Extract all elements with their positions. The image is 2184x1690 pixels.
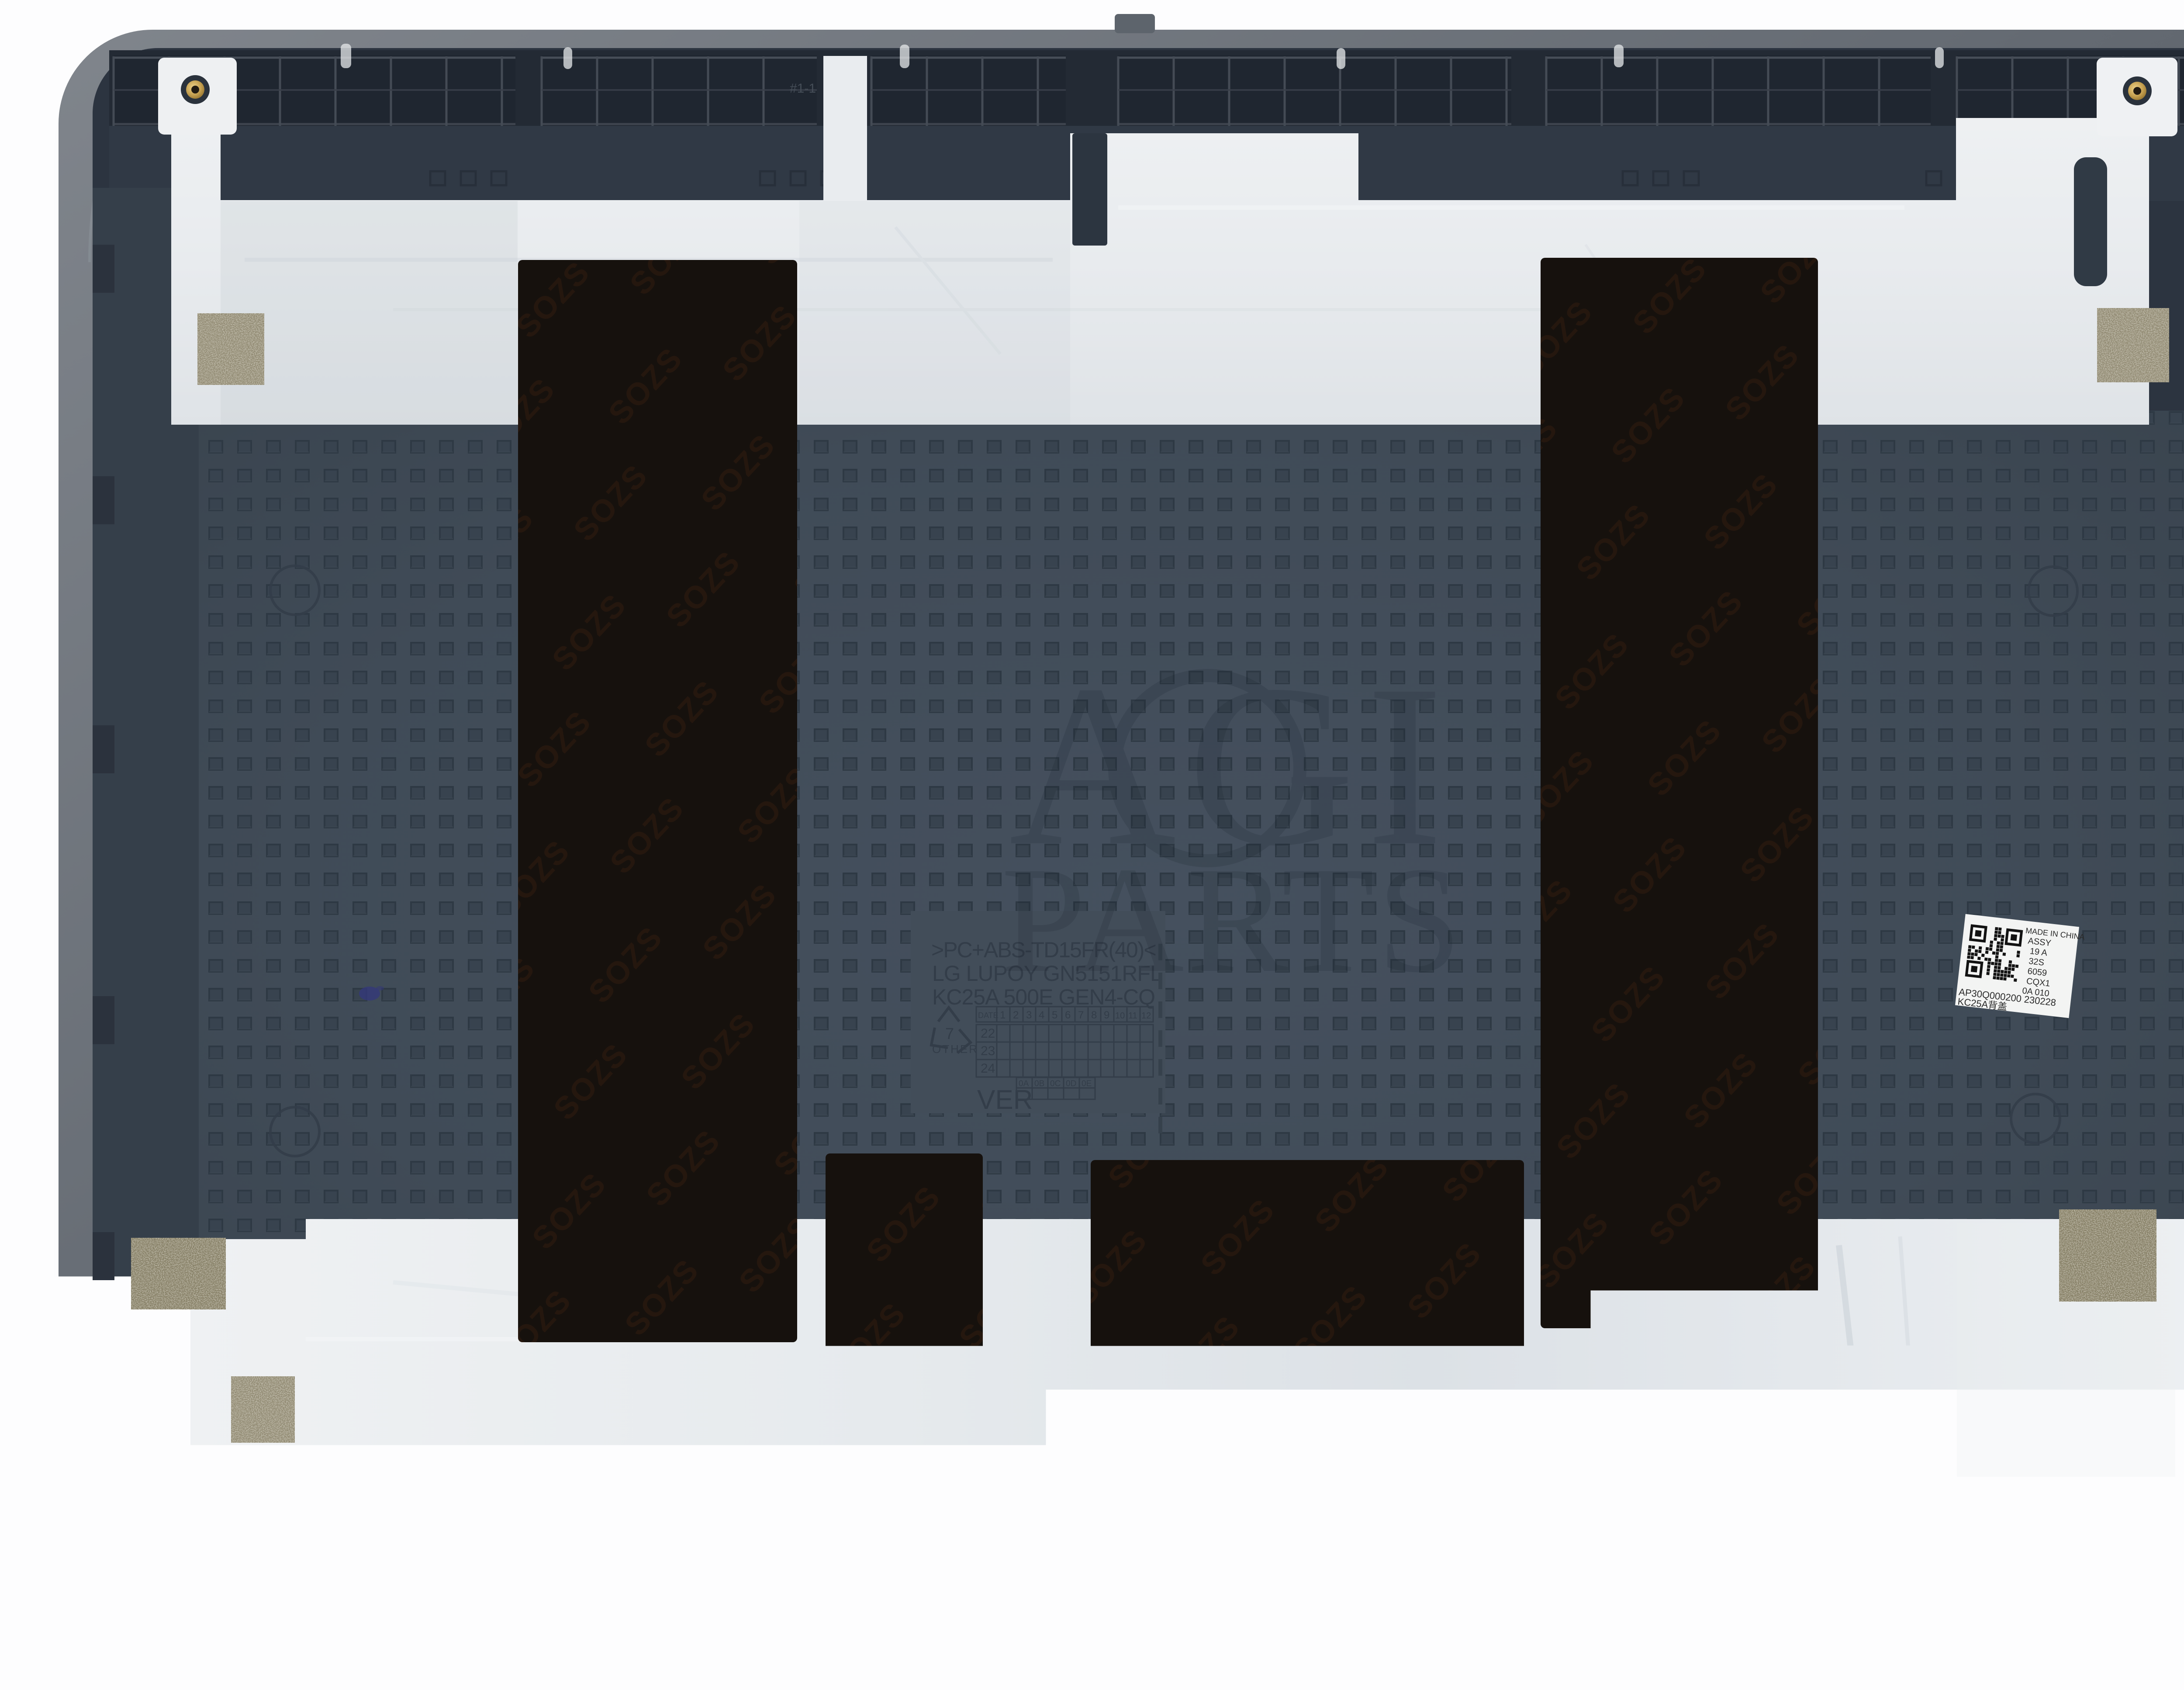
svg-text:1: 1 — [1000, 1009, 1006, 1021]
svg-text:22: 22 — [981, 1026, 995, 1041]
svg-text:3: 3 — [1026, 1009, 1032, 1021]
svg-text:19 A: 19 A — [2029, 946, 2048, 958]
svg-text:23: 23 — [981, 1044, 995, 1058]
svg-text:0C: 0C — [1050, 1079, 1061, 1088]
svg-text:831095100027A: 831095100027A — [1393, 1521, 1464, 1532]
svg-text:24: 24 — [981, 1061, 995, 1076]
svg-text:11: 11 — [1128, 1011, 1137, 1021]
svg-text:5: 5 — [1052, 1009, 1057, 1021]
svg-text:32S: 32S — [2028, 956, 2045, 968]
svg-text:6: 6 — [1065, 1009, 1071, 1021]
svg-text:7: 7 — [1078, 1009, 1084, 1021]
svg-text:8: 8 — [1091, 1009, 1097, 1021]
svg-text:0B: 0B — [1034, 1079, 1044, 1088]
svg-text:12: 12 — [1141, 1011, 1151, 1021]
svg-text:2: 2 — [1013, 1009, 1019, 1021]
svg-text:10: 10 — [1115, 1011, 1125, 1021]
svg-text:PARTS: PARTS — [1001, 836, 1464, 1004]
svg-text:4: 4 — [1039, 1009, 1044, 1021]
svg-text:0E: 0E — [1082, 1079, 1092, 1088]
svg-text:0A: 0A — [1019, 1079, 1029, 1088]
svg-text:230225: 230225 — [1393, 1533, 1438, 1548]
svg-text:9: 9 — [1104, 1009, 1109, 1021]
svg-text:DATE: DATE — [978, 1011, 999, 1020]
svg-text:JWINJ #1: JWINJ #1 — [1397, 1506, 1450, 1520]
svg-text:0D: 0D — [1066, 1079, 1076, 1088]
svg-text:7: 7 — [945, 1025, 954, 1042]
svg-text:#1-1: #1-1 — [790, 81, 816, 96]
svg-text:600HW: 600HW — [1395, 1549, 1440, 1565]
svg-text:OTHER: OTHER — [932, 1042, 978, 1056]
